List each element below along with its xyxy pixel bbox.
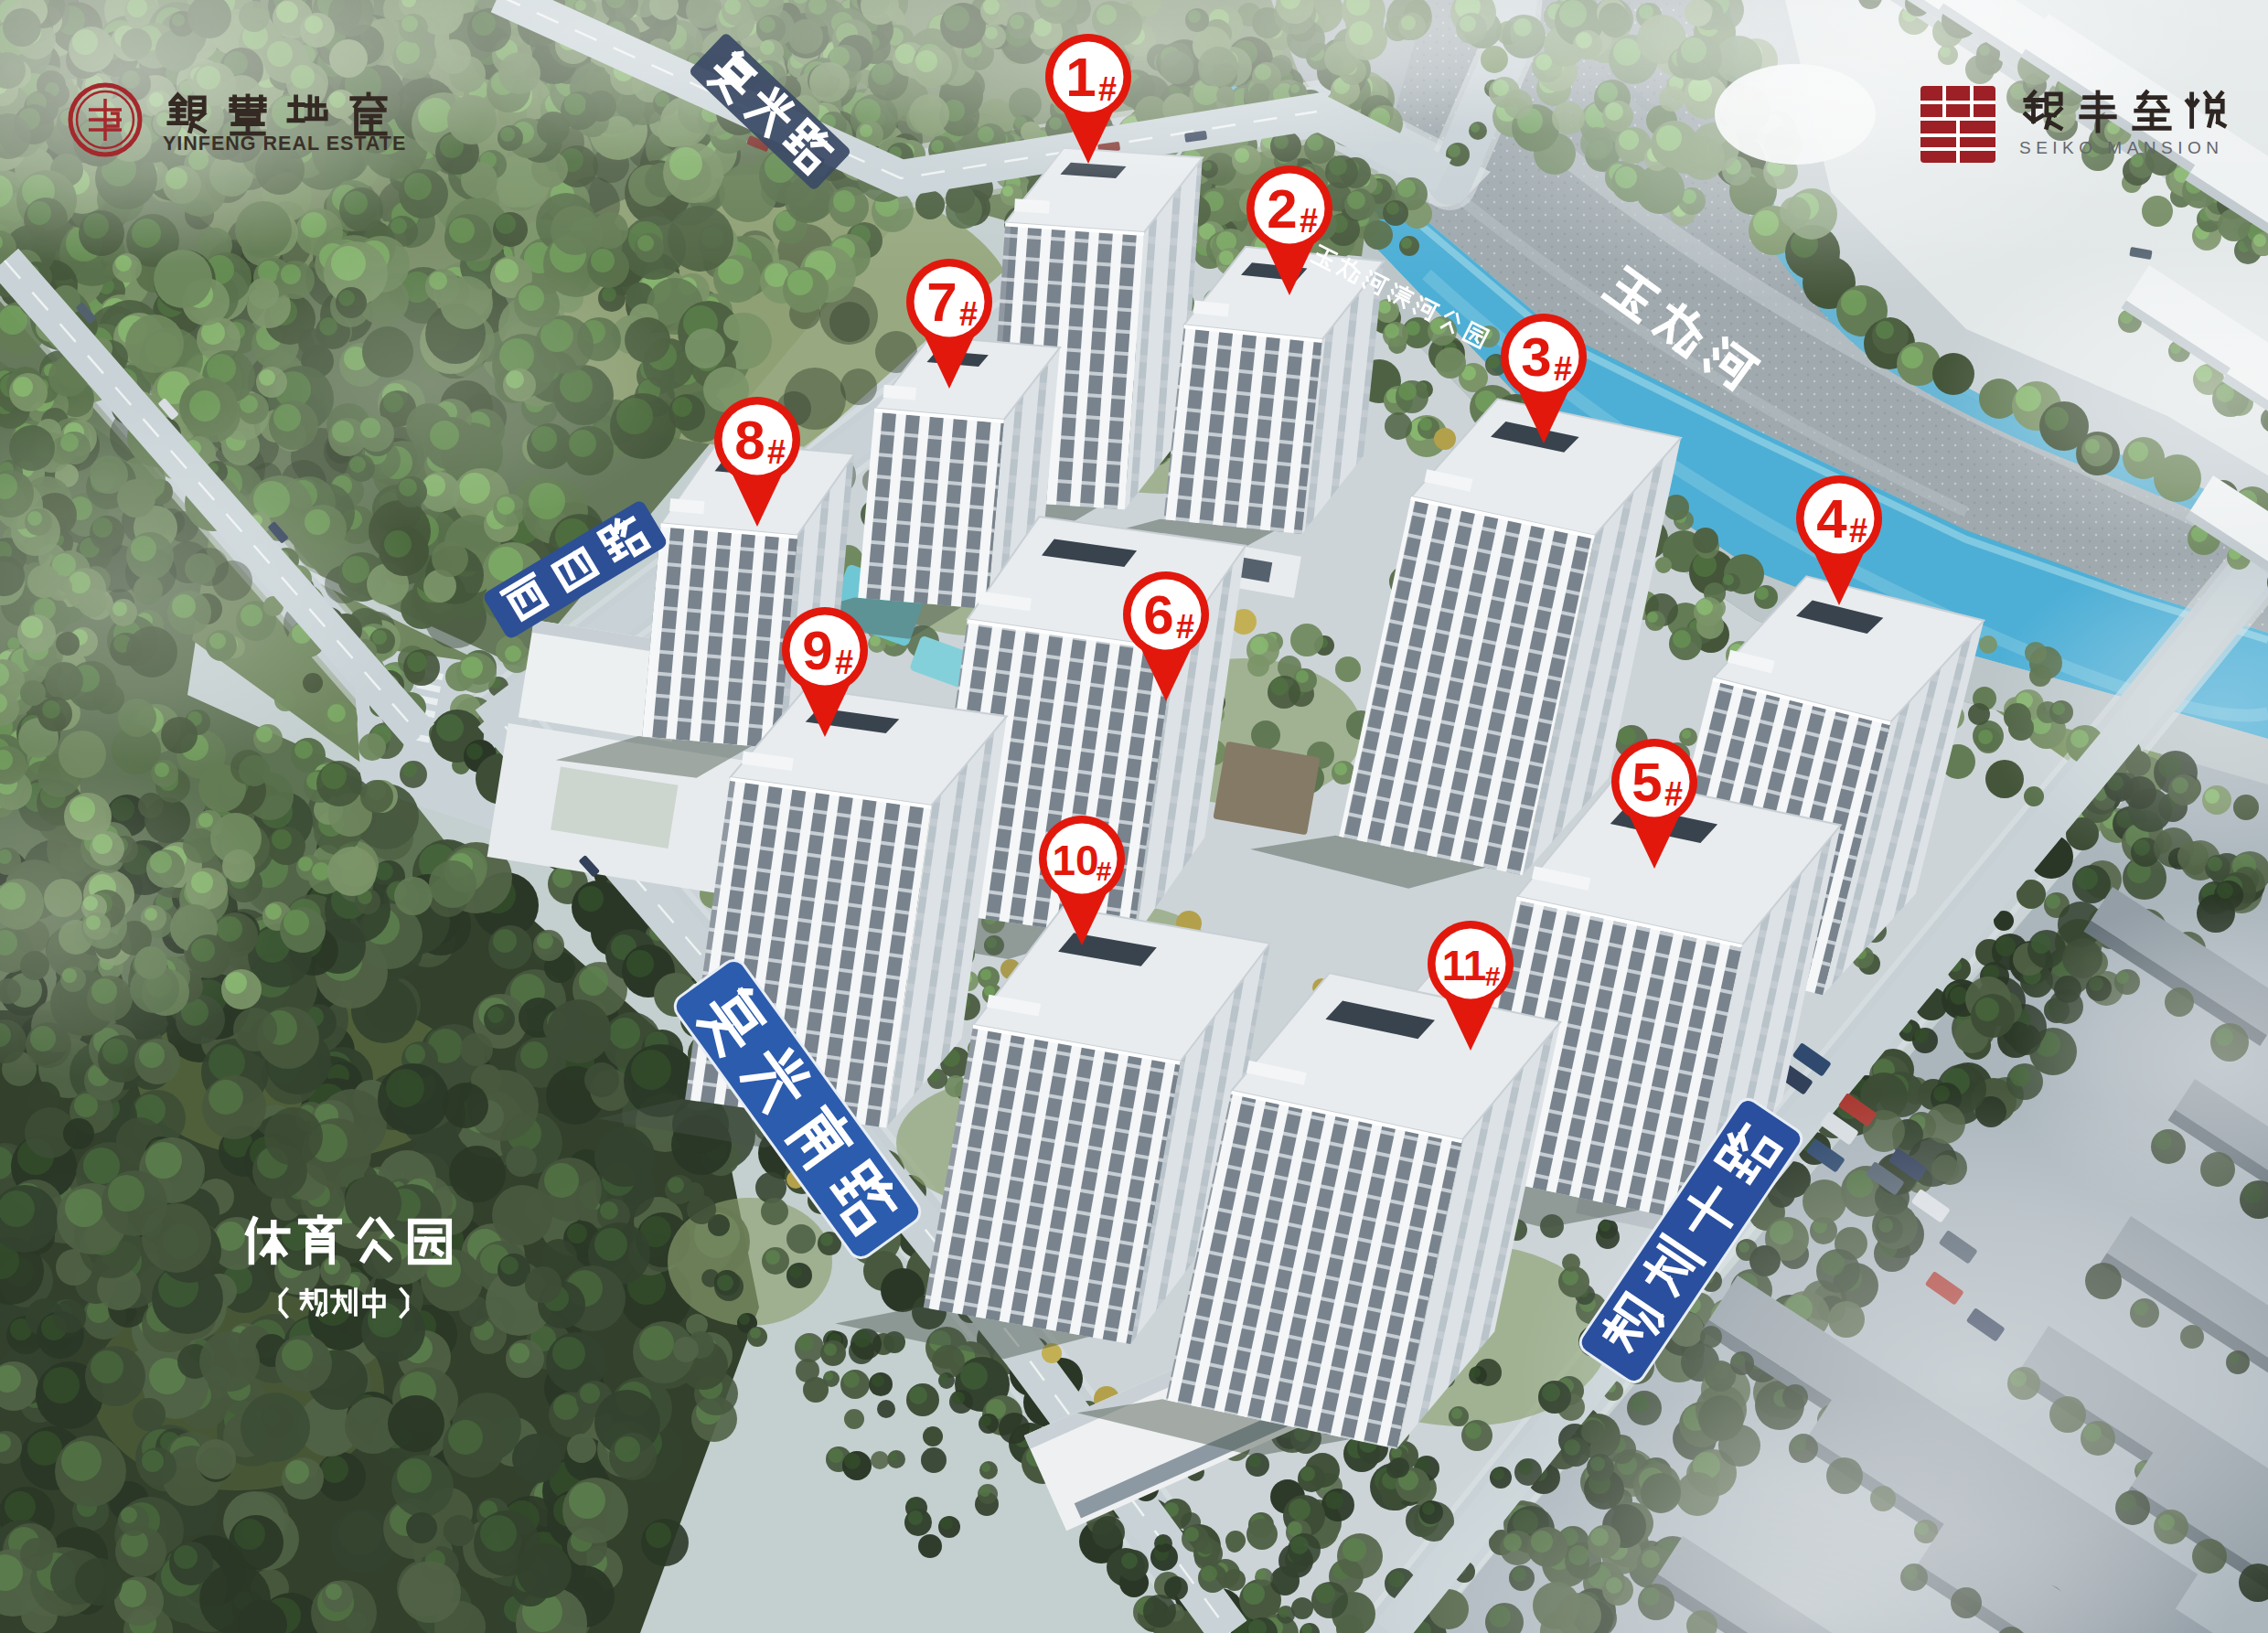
svg-text:#: # — [835, 644, 853, 681]
svg-text:#: # — [767, 433, 786, 471]
svg-text:#: # — [1300, 202, 1318, 240]
svg-text:7: 7 — [926, 272, 957, 333]
svg-text:#: # — [1554, 350, 1572, 388]
svg-text:#: # — [1849, 512, 1867, 550]
svg-text:3: 3 — [1521, 326, 1551, 388]
svg-text:10: 10 — [1052, 837, 1098, 884]
svg-text:8: 8 — [734, 410, 765, 471]
svg-text:YINFENG REAL ESTATE: YINFENG REAL ESTATE — [163, 133, 406, 155]
svg-text:#: # — [1097, 856, 1112, 886]
svg-text:6: 6 — [1143, 584, 1173, 646]
svg-text:9: 9 — [802, 620, 832, 681]
svg-text:#: # — [1176, 608, 1194, 646]
svg-text:#: # — [1664, 775, 1683, 813]
svg-text:2: 2 — [1267, 178, 1297, 240]
svg-text:4: 4 — [1816, 488, 1847, 550]
svg-text:5: 5 — [1631, 752, 1662, 813]
svg-text:#: # — [1098, 70, 1117, 108]
svg-text:1: 1 — [1065, 47, 1096, 108]
svg-text:#: # — [1485, 961, 1501, 991]
svg-text:SEIKO MANSION: SEIKO MANSION — [2019, 138, 2224, 157]
svg-text:#: # — [959, 295, 978, 333]
svg-text:11: 11 — [1442, 942, 1487, 989]
